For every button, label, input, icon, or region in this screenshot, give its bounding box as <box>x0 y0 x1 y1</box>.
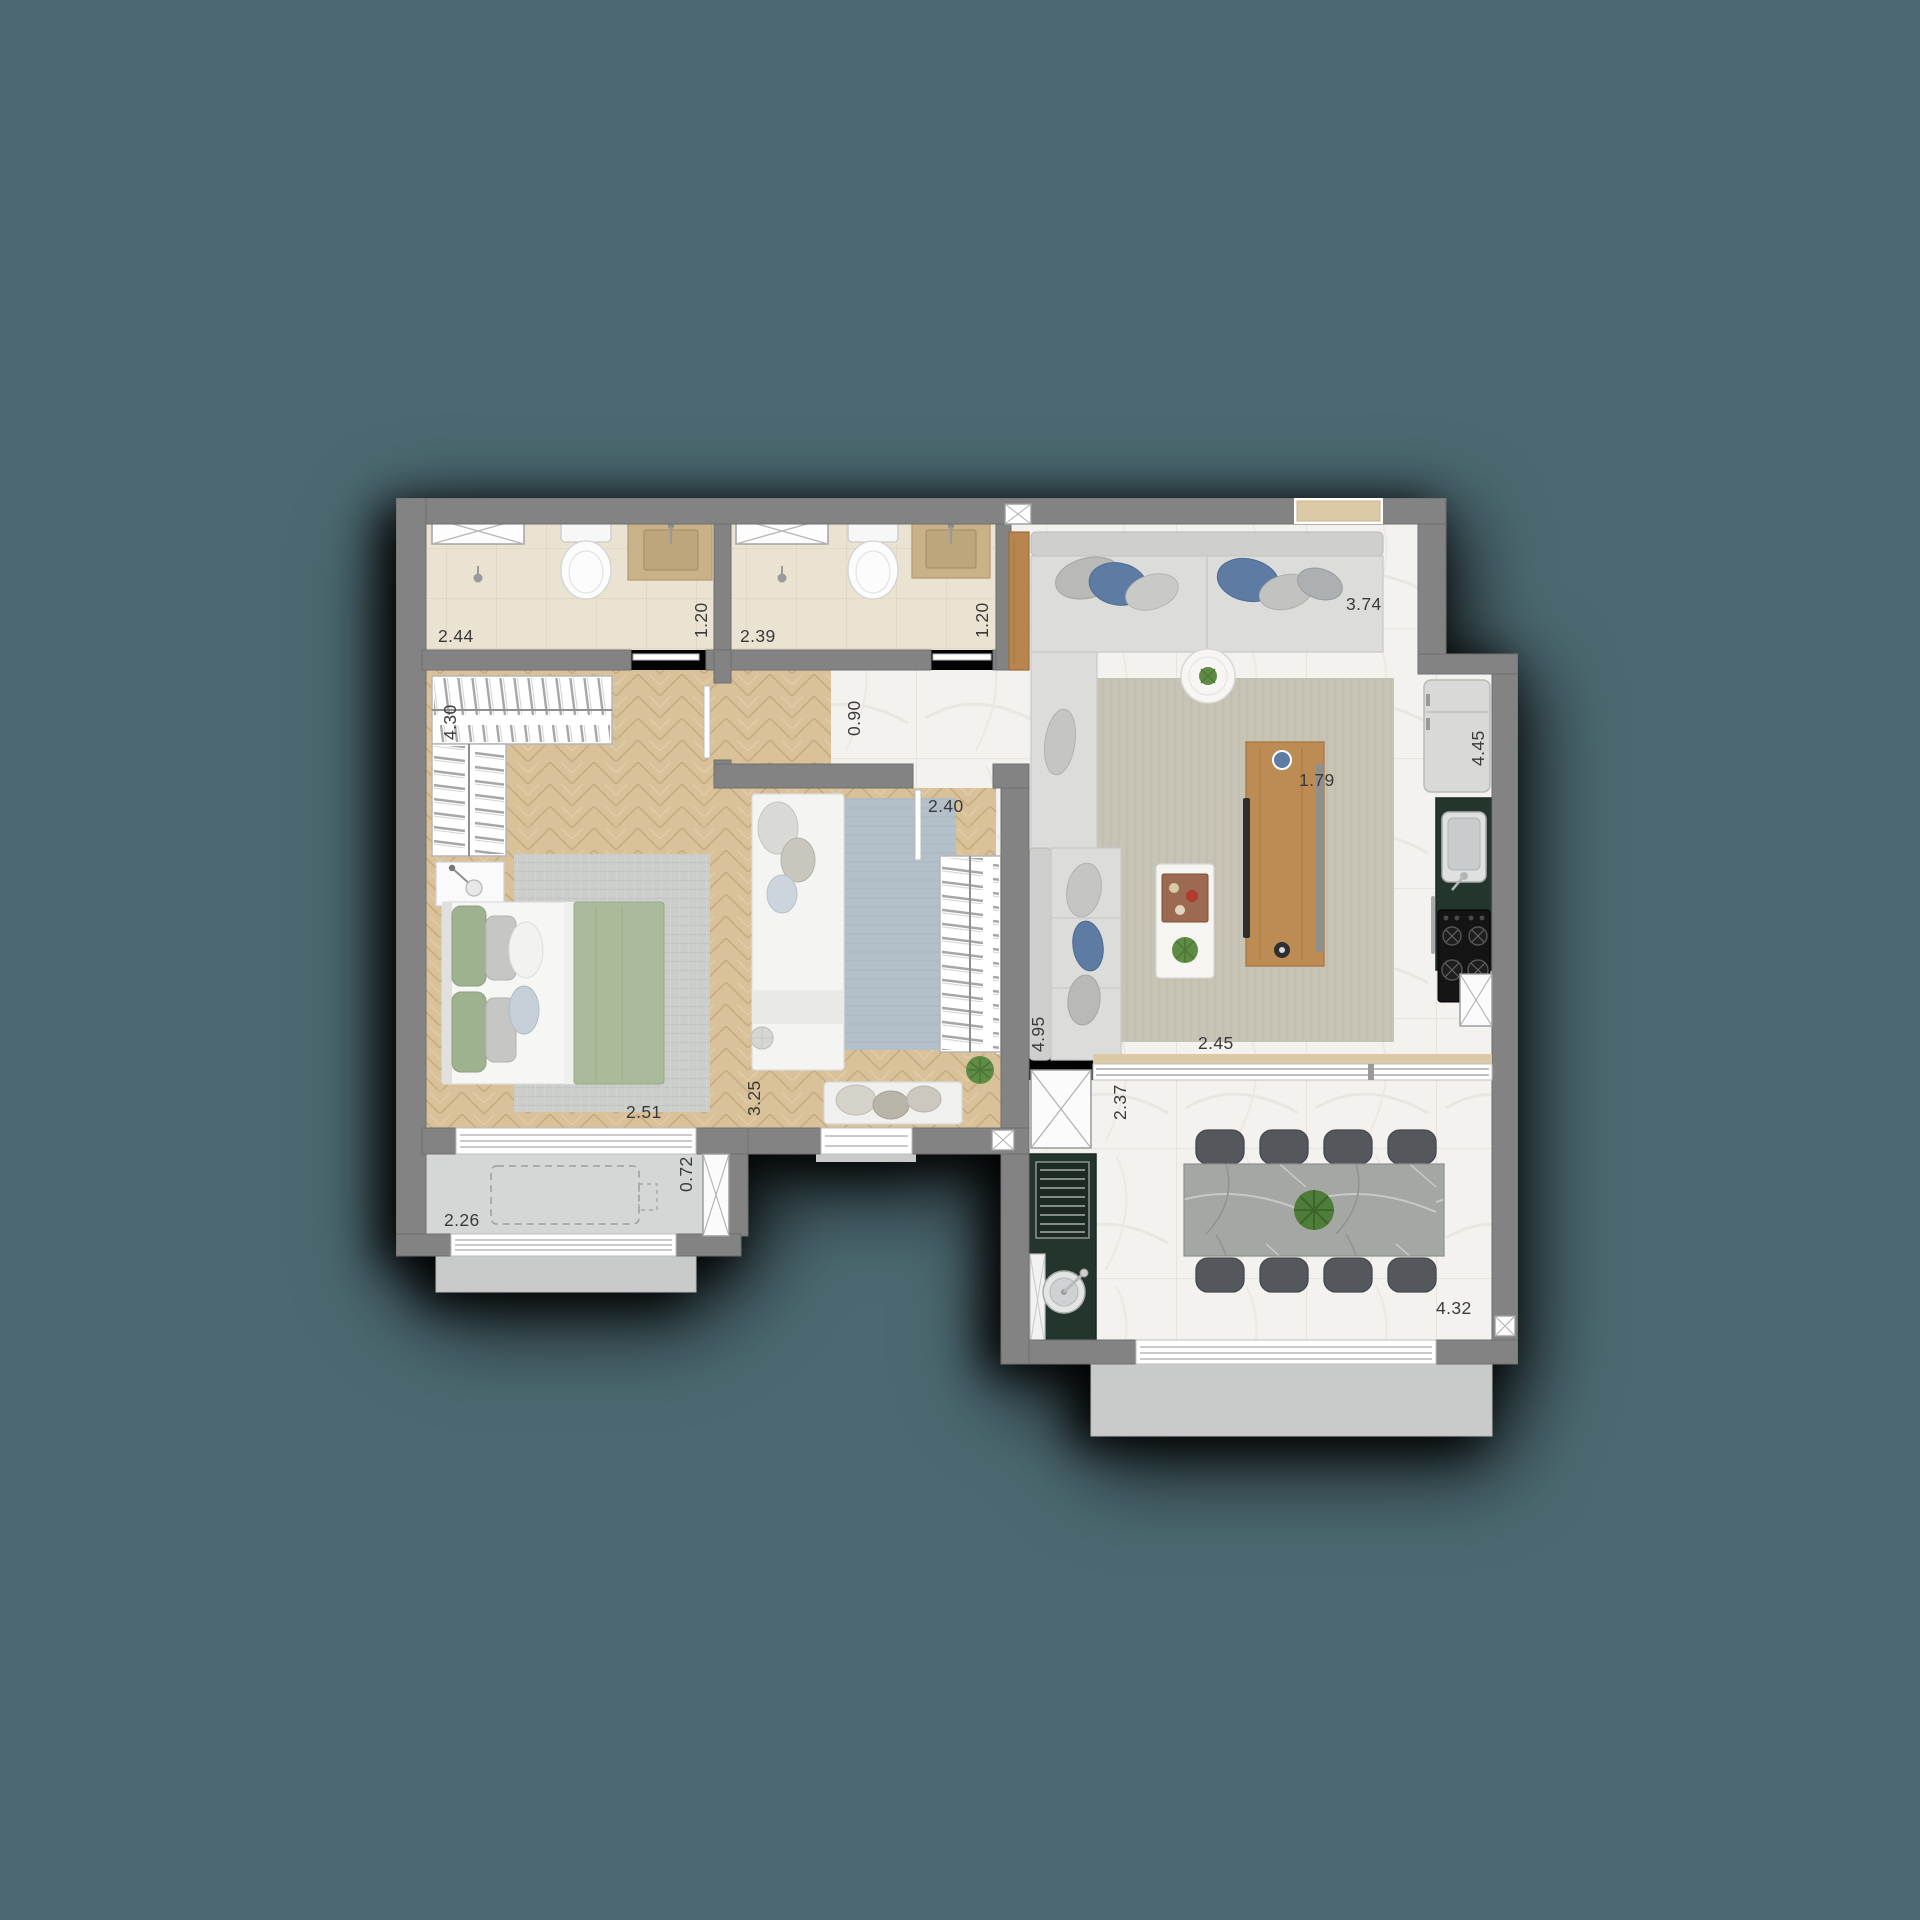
dim-kitchen-length: 4.45 <box>1468 730 1488 766</box>
wall-right <box>1492 674 1518 1364</box>
terrace-outer-slab <box>1091 1364 1492 1436</box>
balcony-outer-slab <box>436 1256 696 1292</box>
pillow <box>873 1091 909 1119</box>
green-blanket <box>574 902 664 1084</box>
vanity <box>628 518 712 580</box>
plant <box>966 1056 994 1084</box>
shaft-icon <box>992 1130 1014 1150</box>
pillow <box>509 986 539 1034</box>
chair <box>1196 1258 1244 1292</box>
decor-tray <box>1162 874 1208 922</box>
wall-top <box>396 498 1446 524</box>
dim-bath2-length: 2.39 <box>740 626 776 646</box>
wall-living-right <box>1418 524 1446 654</box>
bedroom2-wardrobe <box>940 856 1001 1052</box>
chair <box>1260 1130 1308 1164</box>
window-bench <box>824 1082 962 1124</box>
nightstand <box>436 862 504 906</box>
chair <box>1196 1130 1244 1164</box>
service-area <box>1029 1154 1096 1353</box>
oven-handle <box>1431 896 1435 954</box>
dim-terrace-depth: 2.37 <box>1110 1084 1130 1120</box>
dim-balcony-width: 2.26 <box>444 1210 480 1230</box>
top-wall-window <box>1294 498 1383 524</box>
panel-support <box>1316 764 1324 952</box>
wall-bath-divider <box>714 524 731 650</box>
chair <box>1324 1258 1372 1292</box>
tv-icon <box>1243 798 1250 938</box>
door-icon <box>915 790 921 860</box>
wall-balcony-right <box>729 1154 748 1236</box>
balcony-window <box>451 1234 676 1256</box>
master-bed <box>442 902 664 1084</box>
floor-plan-svg: 2.44 1.20 2.39 1.20 3.74 4.45 4.30 0.90 … <box>396 498 1518 1443</box>
dim-tv-panel: 1.79 <box>1299 770 1335 790</box>
dim-suite-bath-length: 2.44 <box>438 626 474 646</box>
shaft-icon <box>1005 504 1031 524</box>
chair <box>1388 1258 1436 1292</box>
round-side-table <box>1181 649 1235 703</box>
vanity <box>912 518 990 578</box>
chair <box>1388 1130 1436 1164</box>
bedroom2-window <box>821 1128 912 1154</box>
door-icon <box>633 654 699 660</box>
shaft-icon <box>703 1154 729 1236</box>
dim-master-window: 2.51 <box>626 1102 662 1122</box>
door-icon <box>704 686 710 758</box>
entry-door <box>1009 532 1029 670</box>
dim-bedroom2-width: 2.40 <box>928 796 964 816</box>
dim-hall-width: 0.90 <box>844 700 864 736</box>
shaft-icon <box>1495 1316 1515 1336</box>
dim-living-width: 3.74 <box>1346 594 1382 614</box>
pillow <box>767 875 797 913</box>
pillow <box>452 906 486 986</box>
kitchen-sink <box>1442 812 1486 890</box>
dim-terrace-width: 4.32 <box>1436 1298 1472 1318</box>
dim-balcony-depth: 0.72 <box>676 1156 696 1192</box>
bedroom2-rug <box>844 798 956 1050</box>
chair <box>1324 1130 1372 1164</box>
shaft-icon <box>1031 1070 1091 1148</box>
toilet <box>561 518 611 599</box>
wall-center-vertical <box>1001 788 1029 1364</box>
wall-bedroom2-top <box>714 764 913 788</box>
toilet <box>848 518 898 599</box>
dim-bedroom2-length: 3.25 <box>744 1080 764 1116</box>
chair <box>1260 1258 1308 1292</box>
dim-suite-bath-width: 1.20 <box>691 602 711 638</box>
terrace-window <box>1136 1340 1436 1364</box>
dim-terrace-opening: 2.45 <box>1198 1033 1234 1053</box>
dim-master-closet: 4.30 <box>440 704 460 740</box>
table-centerpiece-plant <box>1294 1190 1334 1230</box>
wall-kitchen-nook-top <box>1418 654 1518 674</box>
coffee-table <box>1156 864 1214 978</box>
pillow <box>452 992 486 1072</box>
barbecue-grill <box>1036 1162 1089 1238</box>
door-icon <box>933 654 991 660</box>
decor-bowl <box>1273 751 1291 769</box>
dim-living-length: 4.95 <box>1028 1016 1048 1052</box>
master-window <box>456 1128 696 1154</box>
pillow <box>836 1085 876 1115</box>
pillow <box>907 1086 941 1112</box>
pillow <box>509 922 543 978</box>
living-terrace-slider <box>1093 1054 1492 1080</box>
shaft-icon <box>1460 974 1492 1026</box>
floor-plan: 2.44 1.20 2.39 1.20 3.74 4.45 4.30 0.90 … <box>396 498 1518 1443</box>
dim-bath2-width: 1.20 <box>972 602 992 638</box>
screenshot-background: 2.44 1.20 2.39 1.20 3.74 4.45 4.30 0.90 … <box>0 0 1920 1920</box>
